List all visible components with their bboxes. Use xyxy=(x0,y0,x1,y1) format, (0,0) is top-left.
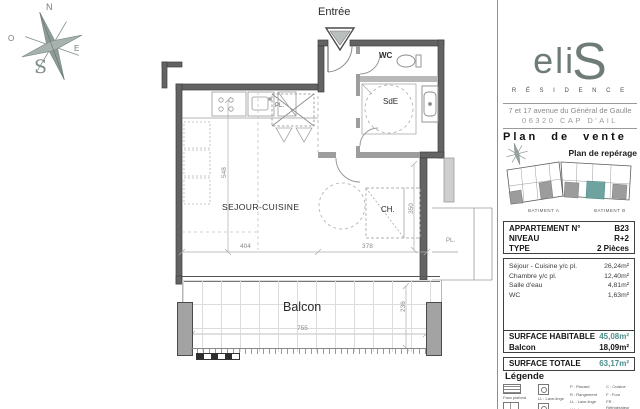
dim-sejour-width: 404 xyxy=(240,243,251,250)
legend-abbr: FR : Réfrigérateur xyxy=(606,399,637,409)
address-line1: 7 et 17 avenue du Général de Gaulle xyxy=(503,106,637,115)
logo-text: eli xyxy=(533,40,575,81)
apartment-number-value: B23 xyxy=(614,224,629,234)
apartment-number-row: APPARTEMENT N° B23 xyxy=(504,224,634,234)
dim-balcon-width: 755 xyxy=(297,325,308,332)
legend-abbr: F : Four xyxy=(606,392,637,398)
wc-label: WC xyxy=(379,51,392,60)
plan-de-vente-page: N O E S xyxy=(0,0,640,409)
faux-plafond-icon xyxy=(503,384,521,394)
chambre-label: CH. xyxy=(381,205,395,214)
dim-sejour-height: 548 xyxy=(221,167,228,178)
entree-label: Entrée xyxy=(318,6,350,18)
room-area: 4,81m² xyxy=(608,281,629,291)
room-name: Séjour - Cuisine y/c pl. xyxy=(509,262,577,272)
balcon-surface-label: Balcon xyxy=(509,343,536,354)
room-areas-box: Séjour - Cuisine y/c pl. 26,24m² Chambre… xyxy=(503,258,635,331)
room-name: WC xyxy=(509,291,520,301)
legend-item: LL : Lave-linge xyxy=(538,384,566,401)
legend-item: SL : Sèche-linge xyxy=(538,403,566,409)
room-row: Salle d'eau 4,81m² xyxy=(504,281,634,291)
plan-de-reperage-title: Plan de repérage xyxy=(540,148,637,158)
apartment-type-row: TYPE 2 Pièces xyxy=(504,244,634,254)
placard2-label: PL. xyxy=(446,238,455,244)
balcon-surface-value: 18,09m² xyxy=(599,343,629,354)
apartment-level-value: R+2 xyxy=(614,234,629,244)
room-row: Séjour - Cuisine y/c pl. 26,24m² xyxy=(504,262,634,272)
batiment-a-label: BATIMENT A xyxy=(528,208,559,213)
balcon-surface-row: Balcon 18,09m² xyxy=(504,343,634,354)
surface-habitable-box: SURFACE HABITABLE 45,08m² Balcon 18,09m² xyxy=(503,330,635,353)
surface-habitable-value: 45,08m² xyxy=(599,332,629,343)
legend-item: Faux plafond xyxy=(503,384,534,400)
lave-linge-icon xyxy=(538,384,549,395)
turning-circle xyxy=(319,183,365,229)
sde-label: SdE xyxy=(383,97,398,106)
legend-block: Faux plafond Placard / dressing LL : Lav… xyxy=(503,384,637,409)
shower-icon xyxy=(362,84,416,134)
neighbour-unit xyxy=(432,158,492,280)
legend-abbr-col2: C : Cuisine F : Four FR : Réfrigérateur … xyxy=(606,384,637,409)
toilet-icon xyxy=(397,55,421,67)
placard-label: PL. xyxy=(275,103,284,109)
residence-label: R É S I D E N C E xyxy=(500,88,640,94)
seche-linge-icon xyxy=(538,403,549,409)
legend-item: Placard / dressing xyxy=(503,402,534,409)
legend-abbr: R : Rangement xyxy=(570,392,602,398)
apartment-level-row: NIVEAU R+2 xyxy=(504,234,634,244)
room-row: WC 1,63m² xyxy=(504,291,634,301)
legend-icons-col1: Faux plafond Placard / dressing xyxy=(503,384,534,409)
balcony-pillar-right xyxy=(426,302,442,356)
legend-abbr-col1: P : Placard R : Rangement LL : Lave-ling… xyxy=(570,384,602,409)
room-name: Chambre y/c pl. xyxy=(509,272,557,282)
entry-arrow-icon xyxy=(326,28,354,50)
balcony-floor xyxy=(182,280,442,352)
surface-habitable-row: SURFACE HABITABLE 45,08m² xyxy=(504,332,634,343)
legend-abbr: LL : Lave-linge xyxy=(570,399,602,405)
elis-logo: eliS xyxy=(500,26,640,86)
apartment-number-label: APPARTEMENT N° xyxy=(509,224,581,234)
surface-totale-label: SURFACE TOTALE xyxy=(509,359,581,370)
surface-totale-value: 63,17m² xyxy=(599,359,629,370)
sejour-cuisine-label: SEJOUR-CUISINE xyxy=(222,202,299,212)
dim-balcon-depth: 236 xyxy=(400,301,407,312)
apartment-type-value: 2 Pièces xyxy=(597,244,629,254)
apartment-type-label: TYPE xyxy=(509,244,530,254)
apartment-level-label: NIVEAU xyxy=(509,234,539,244)
scale-bar xyxy=(196,353,240,360)
balcon-label: Balcon xyxy=(283,300,321,314)
legend-title: Légende xyxy=(505,371,544,382)
surface-totale-row: SURFACE TOTALE 63,17m² xyxy=(504,359,634,370)
apartment-info-box: APPARTEMENT N° B23 NIVEAU R+2 TYPE 2 Piè… xyxy=(503,221,635,254)
site-location-plan xyxy=(503,158,637,206)
room-area: 12,40m² xyxy=(604,272,629,282)
room-area: 26,24m² xyxy=(604,262,629,272)
placard-icon xyxy=(503,402,519,409)
legend-icons-col2: LL : Lave-linge SL : Sèche-linge xyxy=(538,384,566,409)
dim-chambre-height: 350 xyxy=(408,203,415,214)
highlighted-unit-b23 xyxy=(586,181,605,199)
legend-abbr: P : Placard xyxy=(570,384,602,390)
room-area: 1,63m² xyxy=(608,291,629,301)
batiment-b-label: BATIMENT B xyxy=(594,208,626,213)
legend-item-label: LL : Lave-linge xyxy=(538,396,564,401)
room-name: Salle d'eau xyxy=(509,281,542,291)
hob-icon xyxy=(212,92,246,116)
dim-chambre-width: 378 xyxy=(362,243,373,250)
legend-item-label: Faux plafond xyxy=(503,395,526,400)
sidebar-divider xyxy=(497,0,498,409)
washbasin-icon xyxy=(422,86,438,122)
kitchen-fixtures xyxy=(182,92,318,250)
address-line2: 06320 CAP D'AIL xyxy=(503,116,637,125)
address-block: 7 et 17 avenue du Général de Gaulle 0632… xyxy=(503,103,637,129)
legend-abbr: C : Cuisine xyxy=(606,384,637,390)
room-row: Chambre y/c pl. 12,40m² xyxy=(504,272,634,282)
surface-totale-box: SURFACE TOTALE 63,17m² xyxy=(503,357,635,371)
logo-big-s: S xyxy=(572,33,607,91)
surface-habitable-label: SURFACE HABITABLE xyxy=(509,332,595,343)
